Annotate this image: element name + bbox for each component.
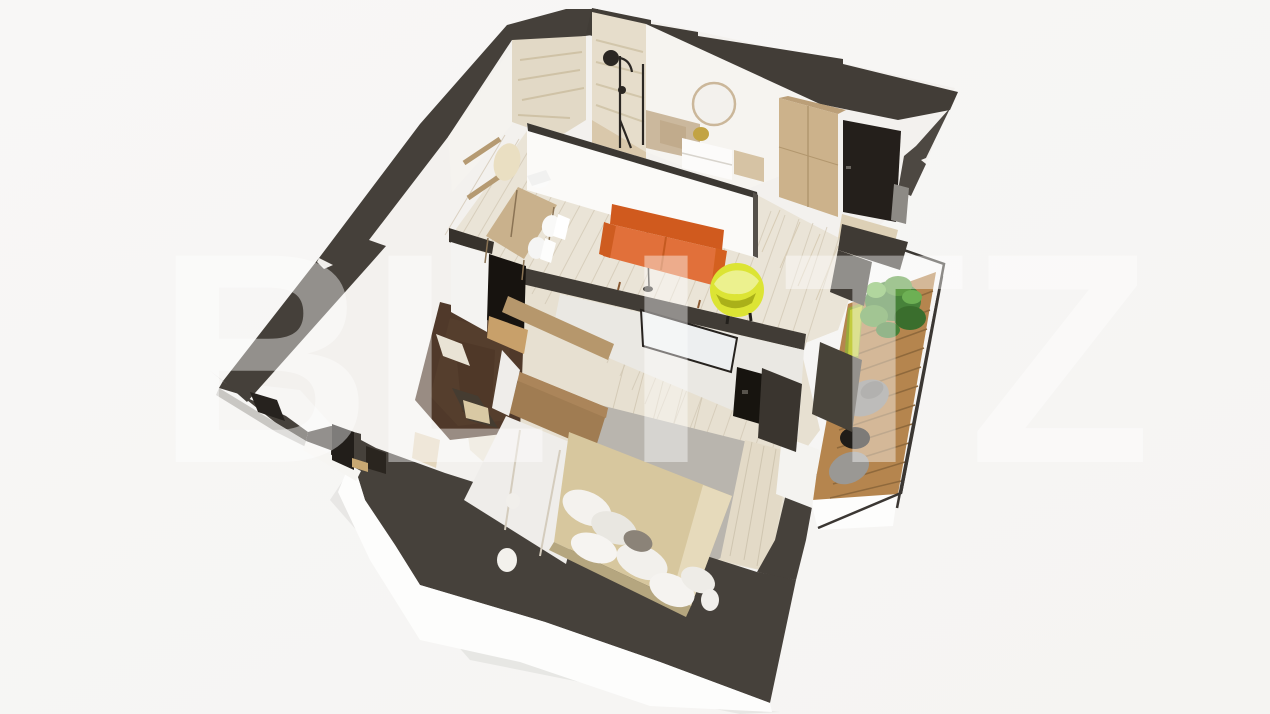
svg-text:I: I	[624, 190, 707, 526]
svg-text:B: B	[156, 190, 373, 526]
svg-text:T: T	[782, 190, 965, 526]
svg-text:L: L	[368, 190, 551, 526]
svg-text:Z: Z	[968, 190, 1151, 526]
